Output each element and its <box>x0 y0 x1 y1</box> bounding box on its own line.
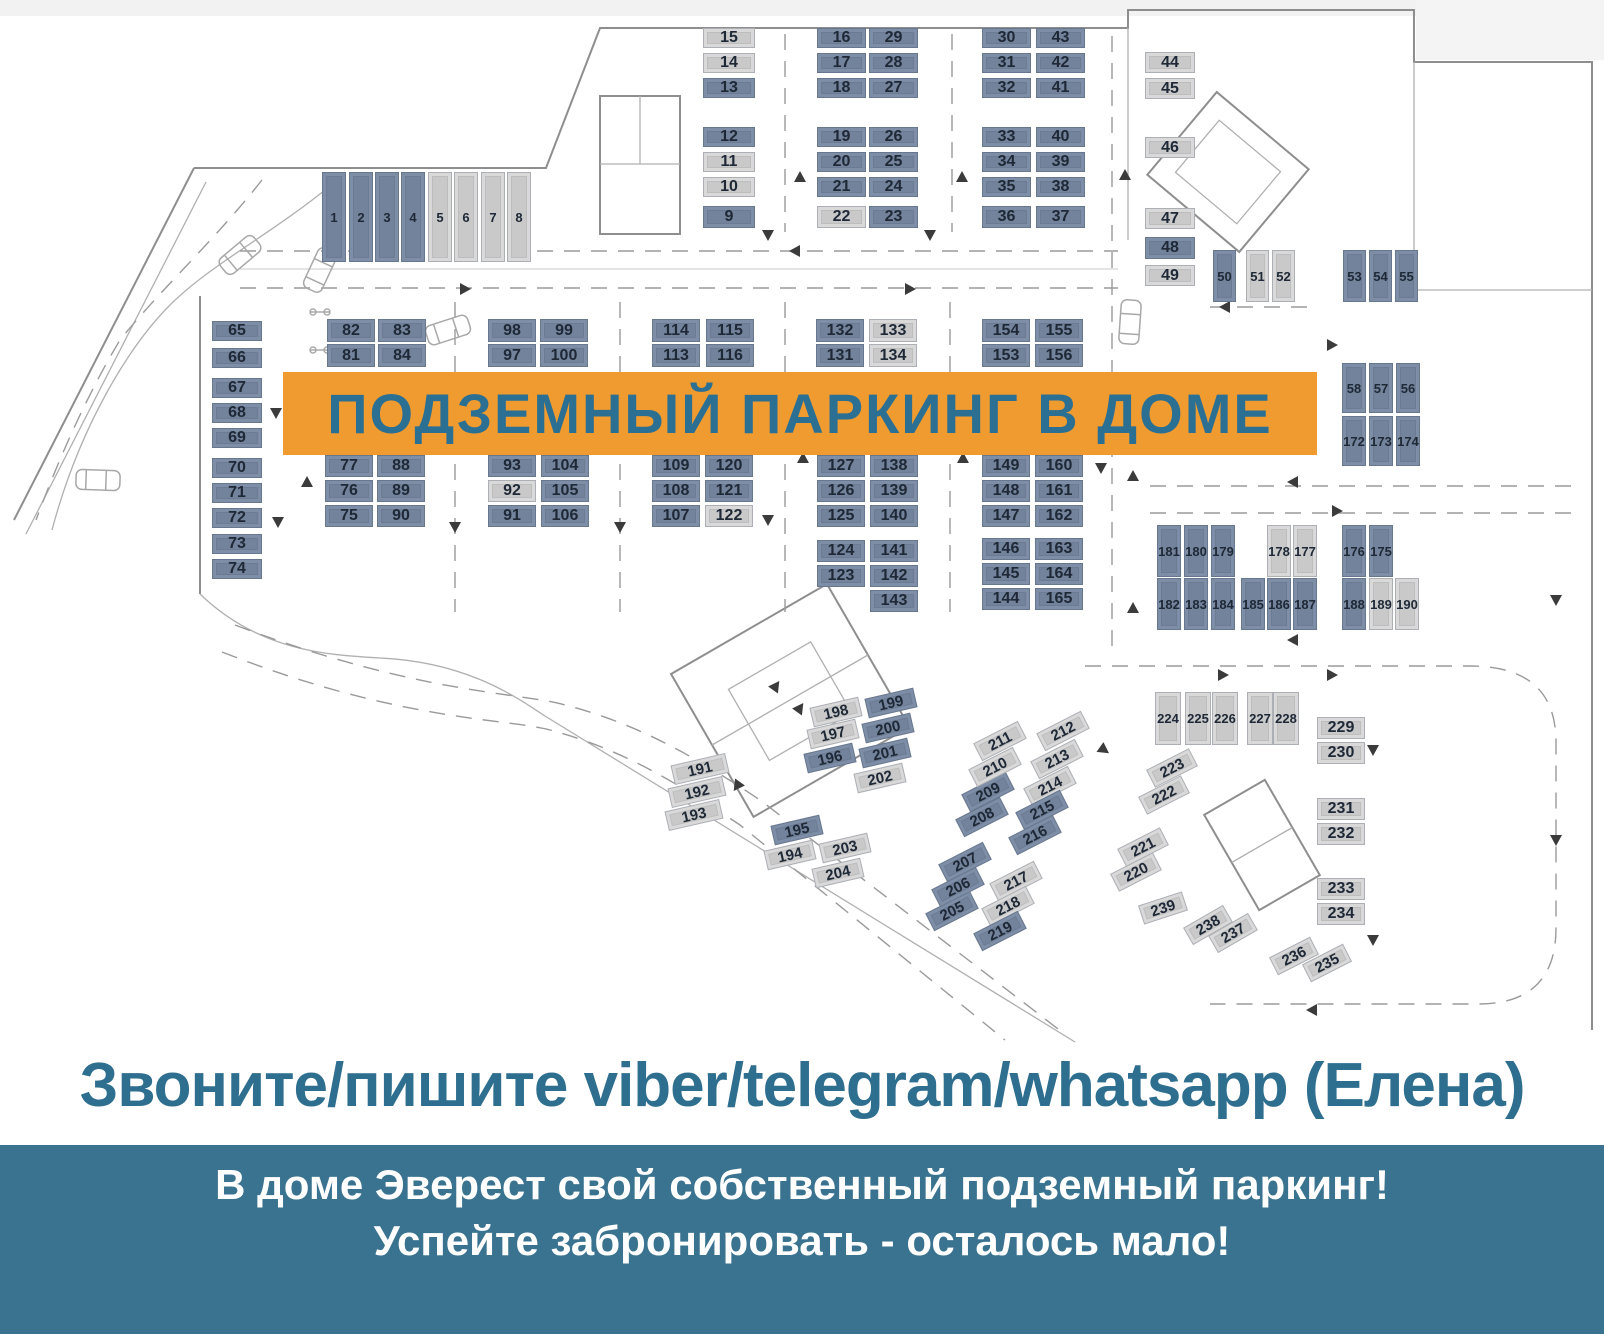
parking-spot-1: 1 <box>322 172 346 262</box>
parking-spot-232: 232 <box>1317 823 1365 845</box>
parking-spot-28: 28 <box>869 53 918 73</box>
parking-spot-43: 43 <box>1036 28 1085 48</box>
parking-spot-122: 122 <box>705 505 753 527</box>
parking-spot-69: 69 <box>212 428 262 448</box>
parking-spot-131: 131 <box>816 344 864 367</box>
parking-spot-115: 115 <box>706 319 754 342</box>
parking-spot-230: 230 <box>1317 742 1365 764</box>
parking-spot-9: 9 <box>703 206 755 228</box>
parking-spot-13: 13 <box>703 78 755 98</box>
orange-banner-text: ПОДЗЕМНЫЙ ПАРКИНГ В ДОМЕ <box>327 381 1272 446</box>
parking-spot-83: 83 <box>378 319 426 342</box>
parking-spot-160: 160 <box>1035 455 1083 477</box>
parking-spot-3: 3 <box>375 172 399 262</box>
parking-spot-134: 134 <box>869 344 917 367</box>
parking-spot-98: 98 <box>488 319 536 342</box>
parking-spot-65: 65 <box>212 321 262 341</box>
parking-spot-68: 68 <box>212 403 262 423</box>
parking-spot-179: 179 <box>1211 525 1235 577</box>
parking-spot-82: 82 <box>327 319 375 342</box>
parking-spot-90: 90 <box>377 505 425 527</box>
parking-spot-146: 146 <box>982 538 1030 560</box>
parking-spot-145: 145 <box>982 563 1030 585</box>
parking-spot-140: 140 <box>870 505 918 527</box>
parking-spot-49: 49 <box>1145 265 1195 286</box>
parking-spot-71: 71 <box>212 483 262 503</box>
parking-spot-37: 37 <box>1036 206 1085 228</box>
parking-spot-8: 8 <box>507 172 531 262</box>
parking-spot-30: 30 <box>982 28 1031 48</box>
parking-spot-190: 190 <box>1395 578 1419 630</box>
parking-spot-178: 178 <box>1267 525 1291 577</box>
footer-banner: В доме Эверест свой собственный подземны… <box>0 1145 1604 1334</box>
parking-spot-172: 172 <box>1342 416 1366 466</box>
parking-spot-50: 50 <box>1213 250 1236 302</box>
parking-spot-176: 176 <box>1342 525 1366 577</box>
parking-spot-188: 188 <box>1342 578 1366 630</box>
parking-spot-19: 19 <box>817 127 866 147</box>
parking-spot-93: 93 <box>488 455 536 477</box>
parking-spot-189: 189 <box>1369 578 1393 630</box>
parking-spot-143: 143 <box>870 590 918 612</box>
parking-spot-39: 39 <box>1036 152 1085 172</box>
parking-spot-89: 89 <box>377 480 425 502</box>
parking-spot-181: 181 <box>1157 525 1181 577</box>
parking-spot-173: 173 <box>1369 416 1393 466</box>
parking-spot-34: 34 <box>982 152 1031 172</box>
parking-spot-38: 38 <box>1036 177 1085 197</box>
parking-spot-138: 138 <box>870 455 918 477</box>
parking-spot-55: 55 <box>1395 250 1418 302</box>
parking-spot-36: 36 <box>982 206 1031 228</box>
parking-spot-180: 180 <box>1184 525 1208 577</box>
parking-spot-185: 185 <box>1241 578 1265 630</box>
parking-spot-141: 141 <box>870 540 918 562</box>
parking-spot-234: 234 <box>1317 903 1365 925</box>
parking-spot-41: 41 <box>1036 78 1085 98</box>
parking-spot-149: 149 <box>982 455 1030 477</box>
parking-spot-48: 48 <box>1145 237 1195 259</box>
parking-spot-14: 14 <box>703 53 755 73</box>
parking-spot-22: 22 <box>817 206 866 228</box>
contact-headline: Звоните/пишите viber/telegram/whatsapp (… <box>0 1050 1604 1121</box>
parking-spot-147: 147 <box>982 505 1030 527</box>
parking-spot-161: 161 <box>1035 480 1083 502</box>
parking-spot-105: 105 <box>541 480 589 502</box>
parking-spot-203: 203 <box>818 833 871 864</box>
parking-spot-97: 97 <box>488 344 536 367</box>
parking-spot-10: 10 <box>703 177 755 197</box>
parking-spot-139: 139 <box>870 480 918 502</box>
parking-spot-184: 184 <box>1211 578 1235 630</box>
parking-spot-47: 47 <box>1145 208 1195 229</box>
parking-spot-233: 233 <box>1317 878 1365 900</box>
parking-spot-26: 26 <box>869 127 918 147</box>
parking-spot-109: 109 <box>652 455 700 477</box>
parking-spot-11: 11 <box>703 152 755 172</box>
parking-spot-42: 42 <box>1036 53 1085 73</box>
parking-spot-57: 57 <box>1369 363 1393 413</box>
parking-spot-142: 142 <box>870 565 918 587</box>
parking-spot-239: 239 <box>1138 891 1188 924</box>
parking-spot-18: 18 <box>817 78 866 98</box>
parking-spot-4: 4 <box>401 172 425 262</box>
parking-spot-144: 144 <box>982 588 1030 610</box>
parking-spot-123: 123 <box>817 565 865 587</box>
parking-spot-40: 40 <box>1036 127 1085 147</box>
parking-spot-224: 224 <box>1155 692 1181 745</box>
parking-spot-132: 132 <box>816 319 864 342</box>
parking-spot-15: 15 <box>703 28 755 48</box>
parking-spot-165: 165 <box>1035 588 1083 610</box>
parking-spots-layer: 1234567891011121314151617181920212223242… <box>0 0 1604 1045</box>
parking-spot-155: 155 <box>1035 319 1083 342</box>
parking-spot-99: 99 <box>540 319 588 342</box>
parking-spot-156: 156 <box>1035 344 1083 367</box>
parking-spot-183: 183 <box>1184 578 1208 630</box>
parking-spot-5: 5 <box>428 172 452 262</box>
parking-spot-154: 154 <box>982 319 1030 342</box>
parking-spot-45: 45 <box>1145 78 1195 99</box>
parking-spot-186: 186 <box>1267 578 1291 630</box>
footer-line1: В доме Эверест свой собственный подземны… <box>0 1157 1604 1213</box>
parking-spot-72: 72 <box>212 508 262 528</box>
parking-spot-148: 148 <box>982 480 1030 502</box>
parking-spot-182: 182 <box>1157 578 1181 630</box>
parking-spot-20: 20 <box>817 152 866 172</box>
parking-spot-35: 35 <box>982 177 1031 197</box>
parking-spot-29: 29 <box>869 28 918 48</box>
parking-spot-225: 225 <box>1185 692 1211 745</box>
parking-spot-113: 113 <box>652 344 700 367</box>
parking-spot-204: 204 <box>811 858 864 889</box>
parking-spot-81: 81 <box>327 344 375 367</box>
parking-spot-177: 177 <box>1293 525 1317 577</box>
parking-spot-228: 228 <box>1273 692 1299 745</box>
parking-spot-227: 227 <box>1247 692 1273 745</box>
parking-spot-120: 120 <box>705 455 753 477</box>
parking-spot-153: 153 <box>982 344 1030 367</box>
parking-spot-194: 194 <box>763 840 816 871</box>
parking-spot-51: 51 <box>1246 250 1269 302</box>
parking-spot-74: 74 <box>212 559 262 579</box>
parking-spot-31: 31 <box>982 53 1031 73</box>
parking-spot-77: 77 <box>325 455 373 477</box>
parking-spot-73: 73 <box>212 534 262 554</box>
parking-spot-46: 46 <box>1145 137 1195 158</box>
parking-spot-54: 54 <box>1369 250 1392 302</box>
parking-spot-187: 187 <box>1293 578 1317 630</box>
parking-spot-6: 6 <box>454 172 478 262</box>
parking-spot-24: 24 <box>869 177 918 197</box>
parking-spot-124: 124 <box>817 540 865 562</box>
parking-spot-84: 84 <box>378 344 426 367</box>
parking-spot-16: 16 <box>817 28 866 48</box>
parking-spot-162: 162 <box>1035 505 1083 527</box>
parking-spot-53: 53 <box>1343 250 1366 302</box>
parking-spot-104: 104 <box>541 455 589 477</box>
parking-spot-107: 107 <box>652 505 700 527</box>
parking-spot-133: 133 <box>869 319 917 342</box>
parking-spot-106: 106 <box>541 505 589 527</box>
parking-spot-66: 66 <box>212 348 262 368</box>
parking-spot-164: 164 <box>1035 563 1083 585</box>
parking-spot-70: 70 <box>212 458 262 478</box>
parking-spot-67: 67 <box>212 378 262 398</box>
parking-spot-17: 17 <box>817 53 866 73</box>
parking-spot-226: 226 <box>1212 692 1238 745</box>
parking-spot-163: 163 <box>1035 538 1083 560</box>
parking-spot-32: 32 <box>982 78 1031 98</box>
parking-spot-108: 108 <box>652 480 700 502</box>
parking-spot-100: 100 <box>540 344 588 367</box>
parking-spot-229: 229 <box>1317 717 1365 739</box>
parking-spot-91: 91 <box>488 505 536 527</box>
parking-spot-175: 175 <box>1369 525 1393 577</box>
parking-spot-76: 76 <box>325 480 373 502</box>
parking-spot-21: 21 <box>817 177 866 197</box>
parking-spot-125: 125 <box>817 505 865 527</box>
parking-spot-58: 58 <box>1342 363 1366 413</box>
parking-spot-44: 44 <box>1145 52 1195 73</box>
parking-spot-92: 92 <box>488 480 536 502</box>
parking-spot-2: 2 <box>349 172 373 262</box>
parking-spot-202: 202 <box>853 763 906 794</box>
parking-poster: 1234567891011121314151617181920212223242… <box>0 0 1604 1334</box>
orange-banner: ПОДЗЕМНЫЙ ПАРКИНГ В ДОМЕ <box>283 372 1317 455</box>
parking-spot-7: 7 <box>481 172 505 262</box>
parking-spot-33: 33 <box>982 127 1031 147</box>
footer-line2: Успейте забронировать - осталось мало! <box>0 1213 1604 1269</box>
parking-spot-27: 27 <box>869 78 918 98</box>
parking-spot-174: 174 <box>1396 416 1420 466</box>
parking-spot-121: 121 <box>705 480 753 502</box>
parking-spot-195: 195 <box>770 815 823 846</box>
parking-spot-114: 114 <box>652 319 700 342</box>
parking-spot-231: 231 <box>1317 798 1365 820</box>
parking-spot-127: 127 <box>817 455 865 477</box>
parking-spot-12: 12 <box>703 127 755 147</box>
floor-plan: 1234567891011121314151617181920212223242… <box>0 0 1604 1045</box>
parking-spot-88: 88 <box>377 455 425 477</box>
parking-spot-52: 52 <box>1272 250 1295 302</box>
parking-spot-25: 25 <box>869 152 918 172</box>
parking-spot-75: 75 <box>325 505 373 527</box>
parking-spot-116: 116 <box>706 344 754 367</box>
parking-spot-56: 56 <box>1396 363 1420 413</box>
parking-spot-23: 23 <box>869 206 918 228</box>
parking-spot-126: 126 <box>817 480 865 502</box>
